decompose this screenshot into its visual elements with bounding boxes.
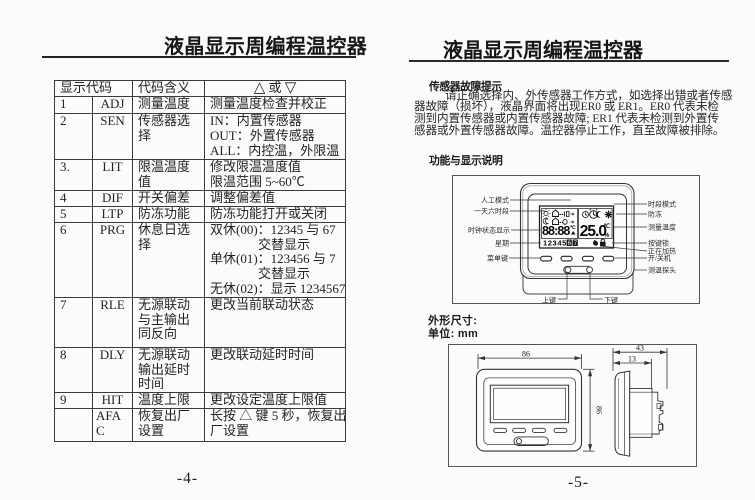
svg-text:13: 13 (628, 355, 636, 364)
svg-text:86: 86 (595, 406, 604, 414)
svg-text:℃: ℃ (570, 224, 576, 231)
svg-text:上键: 上键 (542, 296, 556, 305)
svg-text:时段模式: 时段模式 (648, 200, 676, 209)
svg-text:%: % (604, 233, 610, 239)
svg-text:时钟状态显示: 时钟状态显示 (468, 226, 510, 235)
svg-text:下键: 下键 (604, 296, 618, 305)
svg-text:防冻: 防冻 (648, 210, 662, 219)
svg-text:43: 43 (636, 344, 644, 353)
svg-text:菜单键: 菜单键 (487, 254, 508, 263)
svg-text:测量温度: 测量温度 (648, 223, 676, 232)
svg-text:一天六时段: 一天六时段 (474, 207, 509, 216)
svg-text:℃: ℃ (604, 223, 611, 230)
svg-text:88:88: 88:88 (542, 224, 570, 238)
svg-text:25.0: 25.0 (580, 223, 607, 240)
svg-text:按键锁: 按键锁 (648, 239, 669, 248)
svg-text:测温探头: 测温探头 (648, 266, 676, 275)
svg-text:星期: 星期 (495, 240, 509, 248)
svg-text:开/关机: 开/关机 (648, 254, 671, 263)
svg-text:12345: 12345 (543, 239, 567, 248)
svg-text:86: 86 (522, 350, 530, 359)
svg-text:人工模式: 人工模式 (481, 196, 509, 205)
